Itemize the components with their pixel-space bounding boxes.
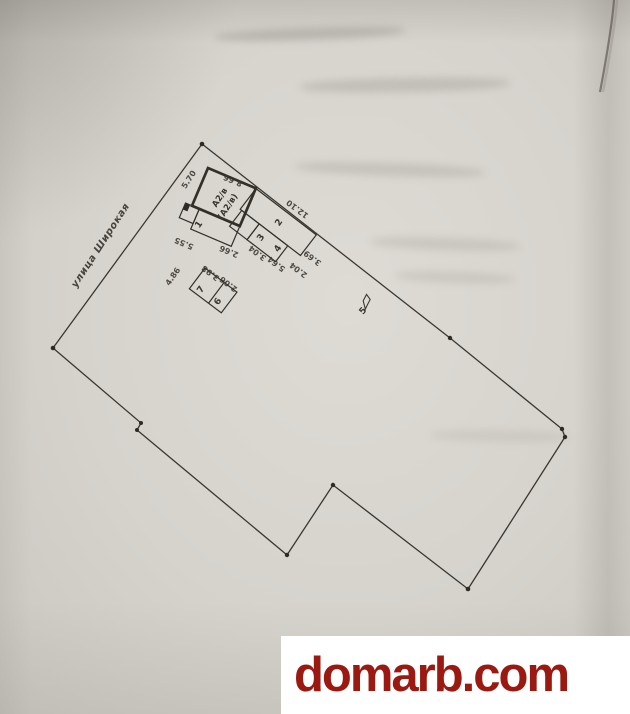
- room2-label: 2: [273, 217, 285, 228]
- boundary-vertex-dot: [448, 336, 452, 340]
- boundary-vertex-dot: [200, 142, 205, 147]
- boundary-vertex-dot: [563, 435, 567, 439]
- boundary-vertex-dot: [285, 553, 289, 557]
- photographed-site-plan: { "photo": { "street_label": "улица Широ…: [0, 0, 630, 714]
- marker-5-label: 5: [358, 306, 370, 317]
- boundary-vertex-dot: [139, 421, 143, 425]
- boundary-vertex-dot: [135, 428, 139, 432]
- dim-2.04: 2.04: [288, 260, 310, 279]
- room6-label: 6: [212, 296, 224, 307]
- dim-5.55: 5.55: [173, 235, 195, 251]
- room7-label: 7: [195, 284, 207, 295]
- dim-4.86: 4.86: [164, 266, 183, 288]
- dim-3.69: 3.69: [302, 248, 324, 267]
- boundary-vertex-dot: [331, 483, 335, 487]
- street-name-label: улица Широкая: [70, 201, 133, 290]
- watermark-band: domarb.com: [281, 636, 630, 714]
- boundary-vertex-dot: [51, 346, 56, 351]
- boundary-vertex-dot: [560, 427, 564, 431]
- site-plan-drawing: 5 улица Широкая А2/в (А2/в) 1 2 3 4 7 6 …: [0, 0, 630, 714]
- room3-label: 3: [255, 232, 267, 243]
- marker-5-group: 5: [355, 294, 377, 316]
- boundary-vertex-dot: [466, 587, 471, 592]
- paper-edge-shadow: [603, 0, 617, 92]
- watermark-text: domarb.com: [281, 651, 568, 700]
- dim-5.70: 5.70: [180, 169, 199, 191]
- room1-label: 1: [193, 219, 205, 230]
- dim-3.98: 3.98: [200, 263, 222, 282]
- dim-12.10: 12.10: [284, 198, 310, 221]
